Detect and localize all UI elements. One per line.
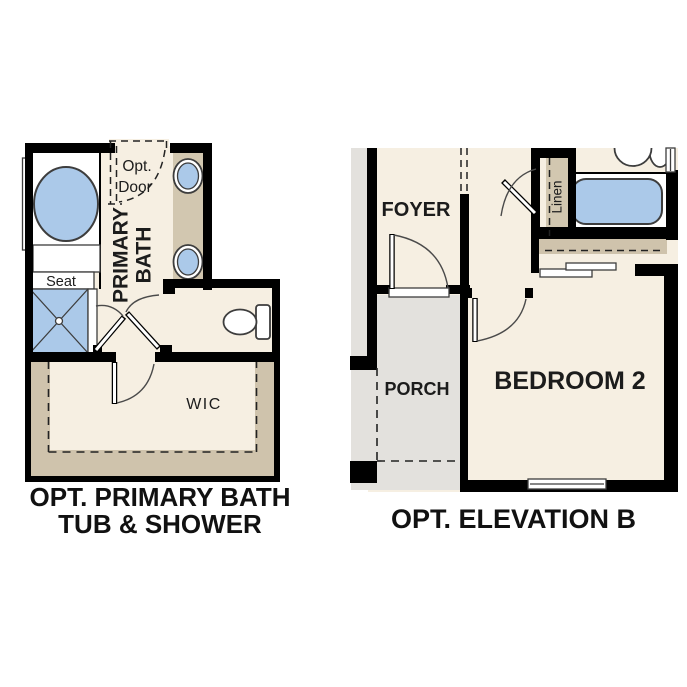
left-plan-caption: OPT. PRIMARY BATH TUB & SHOWER bbox=[0, 484, 320, 538]
room-label-wic: WIC bbox=[186, 396, 222, 413]
toilet bbox=[615, 140, 671, 167]
room-label-bedroom2: BEDROOM 2 bbox=[494, 367, 645, 395]
room-label-primary-bath: BATH bbox=[133, 227, 156, 284]
caption-line: TUB & SHOWER bbox=[0, 511, 320, 538]
floorplan-page: { "colors": { "wall": "#000000", "floor"… bbox=[0, 0, 687, 687]
closet-strip bbox=[538, 237, 667, 254]
window bbox=[666, 148, 675, 172]
shower-glass bbox=[88, 289, 97, 353]
bathtub bbox=[572, 179, 662, 224]
opt-door-label: Opt. bbox=[122, 158, 151, 175]
tub-deck bbox=[33, 245, 100, 272]
right-plan-caption: OPT. ELEVATION B bbox=[340, 505, 687, 533]
caption-line: OPT. PRIMARY BATH bbox=[0, 484, 320, 511]
shower bbox=[30, 289, 97, 353]
sink bbox=[174, 159, 203, 193]
walk-in-closet bbox=[25, 358, 280, 482]
porch-floor bbox=[377, 295, 461, 370]
sink bbox=[174, 245, 203, 279]
room-label-primary-bath: PRIMARY bbox=[110, 207, 133, 303]
room-label-porch: PORCH bbox=[384, 379, 449, 399]
opt-door-label: Door bbox=[118, 179, 152, 196]
elevation-b-floor-plan: FOYER PORCH BEDROOM 2 Linen bbox=[340, 140, 687, 500]
entry-threshold bbox=[389, 288, 449, 297]
primary-bath-floor-plan: Opt. Door PRIMARY BATH Seat WIC bbox=[0, 125, 320, 495]
room-label-foyer: FOYER bbox=[382, 199, 451, 221]
bedroom-window bbox=[528, 479, 606, 489]
caption-line: OPT. ELEVATION B bbox=[340, 505, 687, 533]
bathtub bbox=[34, 167, 98, 241]
seat-label: Seat bbox=[46, 274, 76, 290]
room-label-linen: Linen bbox=[550, 180, 565, 213]
